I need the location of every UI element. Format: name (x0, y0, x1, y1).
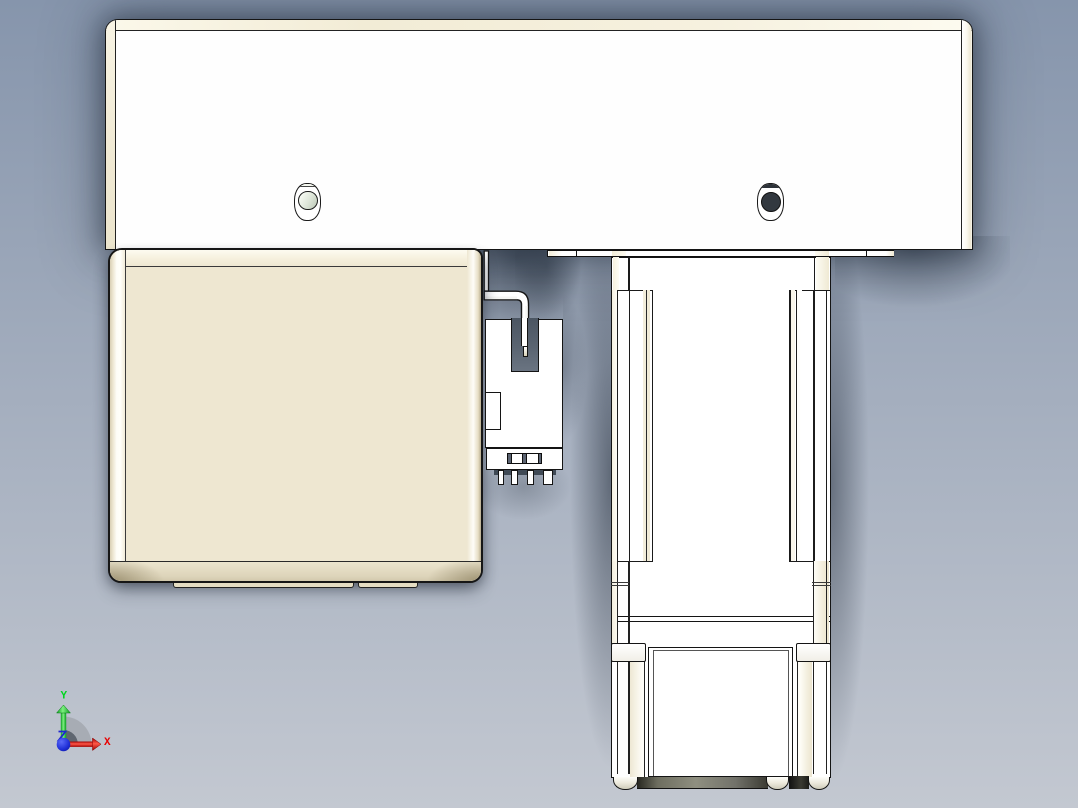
svg-text:Y: Y (61, 691, 68, 703)
svg-text:X: X (104, 737, 111, 749)
